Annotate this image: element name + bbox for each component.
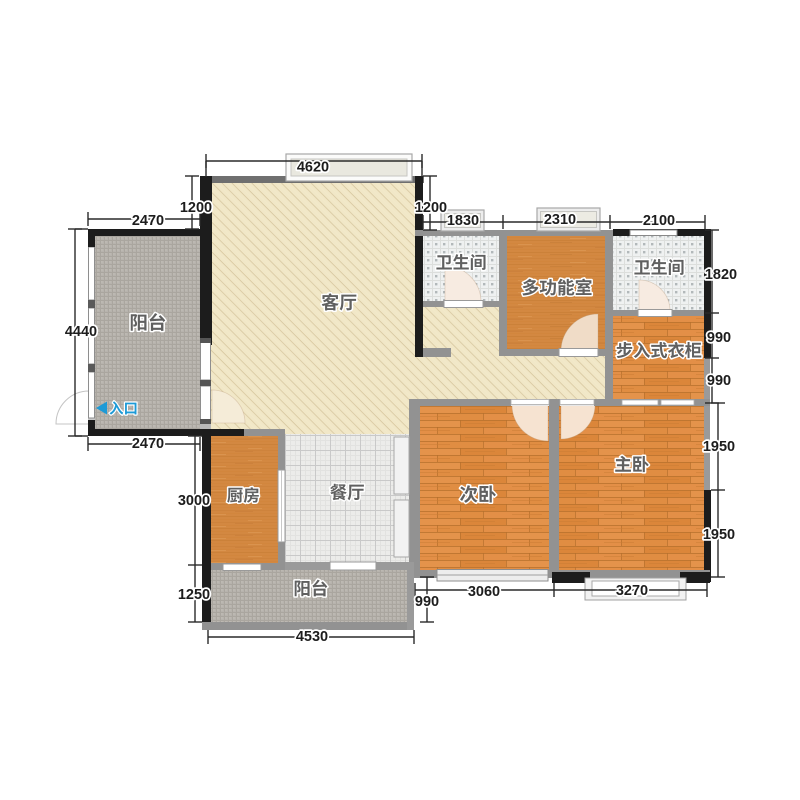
svg-text:990: 990 <box>707 330 731 346</box>
svg-text:1250: 1250 <box>178 587 210 603</box>
svg-text:990: 990 <box>707 373 731 389</box>
svg-text:1200: 1200 <box>180 200 212 216</box>
svg-text:3000: 3000 <box>178 493 210 509</box>
svg-text:990: 990 <box>415 594 439 610</box>
svg-text:1950: 1950 <box>703 527 735 543</box>
svg-text:2470: 2470 <box>132 213 164 229</box>
svg-text:4530: 4530 <box>296 629 328 645</box>
svg-text:2470: 2470 <box>132 436 164 452</box>
svg-text:3270: 3270 <box>616 583 648 599</box>
svg-text:1950: 1950 <box>703 439 735 455</box>
svg-text:4440: 4440 <box>65 324 97 340</box>
svg-text:3060: 3060 <box>468 584 500 600</box>
svg-text:1830: 1830 <box>447 213 479 229</box>
svg-text:2310: 2310 <box>544 212 576 228</box>
svg-text:1200: 1200 <box>415 200 447 216</box>
svg-text:1820: 1820 <box>705 267 737 283</box>
svg-text:2100: 2100 <box>643 213 675 229</box>
svg-text:4620: 4620 <box>297 160 329 176</box>
